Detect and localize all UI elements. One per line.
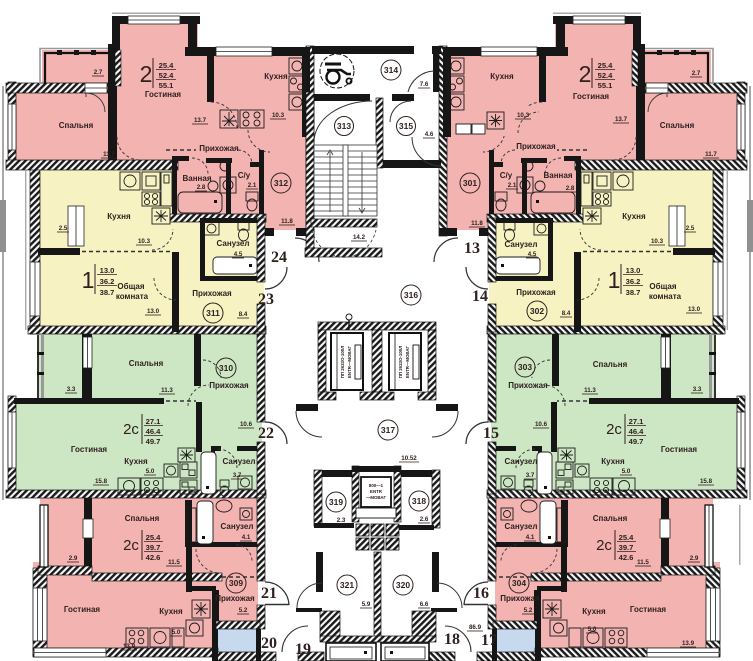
- svg-text:13: 13: [464, 240, 480, 257]
- svg-text:313: 313: [337, 121, 351, 131]
- svg-text:Кухня: Кухня: [490, 72, 514, 81]
- svg-text:Спальня: Спальня: [593, 360, 628, 369]
- svg-text:13.7: 13.7: [615, 116, 628, 123]
- svg-text:Кухня: Кухня: [124, 457, 148, 466]
- svg-text:5.0: 5.0: [146, 468, 155, 475]
- svg-text:309: 309: [229, 578, 243, 588]
- svg-text:5.9: 5.9: [362, 601, 371, 608]
- svg-text:302: 302: [530, 306, 544, 316]
- svg-text:10.3: 10.3: [138, 238, 151, 245]
- svg-text:С/у: С/у: [238, 171, 251, 180]
- svg-text:ENTR: ENTR: [370, 489, 383, 494]
- svg-text:Ванная: Ванная: [182, 174, 211, 183]
- svg-text:Прихожая: Прихожая: [192, 289, 232, 298]
- svg-text:2.9: 2.9: [690, 555, 699, 562]
- svg-text:800—1: 800—1: [369, 483, 384, 488]
- svg-text:42.6: 42.6: [146, 553, 161, 562]
- svg-text:4.5: 4.5: [234, 251, 243, 258]
- svg-text:Гостиная: Гостиная: [71, 445, 107, 454]
- svg-text:11.8: 11.8: [471, 220, 483, 227]
- svg-text:2.9: 2.9: [69, 555, 78, 562]
- svg-text:25.4: 25.4: [159, 61, 175, 70]
- svg-text:3.3: 3.3: [693, 386, 702, 393]
- svg-text:38.7: 38.7: [100, 288, 115, 297]
- svg-text:2с: 2с: [606, 421, 622, 438]
- svg-text:52.4: 52.4: [159, 71, 175, 80]
- svg-text:10.3: 10.3: [517, 112, 530, 119]
- svg-text:24: 24: [271, 249, 287, 266]
- svg-text:комната: комната: [649, 292, 682, 301]
- svg-text:Кухня: Кухня: [601, 457, 625, 466]
- svg-text:5.2: 5.2: [524, 607, 533, 614]
- svg-text:55.1: 55.1: [159, 81, 175, 90]
- svg-text:17: 17: [481, 632, 497, 649]
- svg-text:—МОВАГ: —МОВАГ: [366, 495, 387, 500]
- svg-text:2с: 2с: [123, 421, 139, 438]
- svg-text:311: 311: [206, 308, 220, 318]
- svg-text:Спальня: Спальня: [660, 121, 695, 130]
- svg-text:2.1: 2.1: [248, 182, 257, 189]
- svg-text:317: 317: [381, 425, 395, 435]
- svg-text:1: 1: [82, 267, 95, 293]
- svg-text:5.0: 5.0: [172, 629, 181, 636]
- svg-text:39.7: 39.7: [146, 543, 161, 552]
- svg-text:Прихожая: Прихожая: [508, 381, 548, 390]
- svg-text:Общая: Общая: [649, 282, 676, 291]
- svg-text:Санузел: Санузел: [505, 522, 538, 531]
- svg-text:25.4: 25.4: [146, 533, 162, 542]
- svg-text:4.1: 4.1: [242, 534, 251, 541]
- svg-text:Гостиная: Гостиная: [145, 90, 181, 99]
- svg-text:Спальня: Спальня: [129, 359, 164, 368]
- svg-text:13.0: 13.0: [688, 306, 701, 313]
- svg-text:10.6: 10.6: [240, 421, 253, 428]
- svg-text:312: 312: [274, 178, 288, 188]
- svg-text:Кухня: Кухня: [622, 212, 646, 221]
- svg-text:18: 18: [444, 631, 460, 648]
- svg-text:8.4: 8.4: [562, 310, 571, 317]
- svg-text:36.2: 36.2: [626, 277, 641, 286]
- svg-text:11.7: 11.7: [705, 151, 717, 158]
- svg-text:ENTR—МОВАГ: ENTR—МОВАГ: [405, 345, 410, 378]
- svg-text:13.0: 13.0: [100, 266, 115, 275]
- svg-text:36.2: 36.2: [100, 277, 115, 286]
- svg-text:22: 22: [258, 425, 274, 442]
- svg-text:49.7: 49.7: [629, 437, 644, 446]
- svg-text:27.1: 27.1: [146, 417, 162, 426]
- svg-text:4.1: 4.1: [526, 534, 535, 541]
- svg-text:19: 19: [295, 641, 311, 658]
- svg-text:38.7: 38.7: [626, 288, 641, 297]
- svg-text:13.9: 13.9: [682, 640, 695, 647]
- svg-text:Гостиная: Гостиная: [630, 605, 666, 614]
- svg-text:4.6: 4.6: [425, 131, 434, 138]
- svg-text:2с: 2с: [123, 537, 139, 554]
- svg-text:301: 301: [463, 178, 477, 188]
- svg-text:42.6: 42.6: [619, 553, 634, 562]
- svg-text:3.7: 3.7: [233, 472, 242, 479]
- svg-text:314: 314: [384, 65, 398, 75]
- svg-text:310: 310: [219, 363, 233, 373]
- svg-text:ПП 2633О-100Л: ПП 2633О-100Л: [398, 346, 403, 379]
- svg-text:11.5: 11.5: [637, 559, 649, 566]
- svg-text:Санузел: Санузел: [223, 457, 256, 466]
- svg-text:8.4: 8.4: [239, 311, 248, 318]
- svg-text:15.8: 15.8: [95, 478, 108, 485]
- svg-text:13.9: 13.9: [123, 643, 136, 650]
- svg-text:10.6: 10.6: [535, 421, 548, 428]
- svg-text:304: 304: [512, 578, 526, 588]
- svg-text:Санузел: Санузел: [221, 522, 254, 531]
- svg-text:16: 16: [473, 585, 489, 602]
- svg-text:11.8: 11.8: [281, 218, 293, 225]
- svg-text:2.5: 2.5: [686, 225, 695, 232]
- svg-text:14.2: 14.2: [353, 234, 366, 241]
- svg-text:Санузел: Санузел: [217, 239, 250, 248]
- svg-text:Гостиная: Гостиная: [64, 605, 100, 614]
- svg-text:Гостиная: Гостиная: [573, 92, 609, 101]
- svg-text:Спальня: Спальня: [125, 514, 160, 523]
- svg-text:39.7: 39.7: [619, 543, 634, 552]
- svg-text:319: 319: [329, 497, 343, 507]
- svg-text:21: 21: [261, 585, 277, 602]
- svg-text:Общая: Общая: [117, 282, 144, 291]
- svg-text:2.8: 2.8: [566, 185, 575, 192]
- svg-text:5.2: 5.2: [239, 607, 248, 614]
- svg-text:55.1: 55.1: [598, 81, 614, 90]
- svg-text:5.0: 5.0: [588, 626, 597, 633]
- svg-text:6.6: 6.6: [420, 601, 429, 608]
- svg-text:25.4: 25.4: [619, 533, 635, 542]
- svg-text:10.3: 10.3: [272, 112, 285, 119]
- svg-text:5.0: 5.0: [622, 468, 631, 475]
- svg-text:316: 316: [404, 290, 418, 300]
- svg-text:321: 321: [340, 580, 354, 590]
- svg-text:11.5: 11.5: [168, 559, 180, 566]
- svg-text:13.0: 13.0: [147, 308, 160, 315]
- svg-text:2.8: 2.8: [197, 184, 206, 191]
- svg-text:315: 315: [399, 121, 413, 131]
- svg-text:1: 1: [608, 267, 621, 293]
- svg-text:13.0: 13.0: [626, 266, 641, 275]
- svg-text:Санузел: Санузел: [505, 457, 538, 466]
- svg-text:С/у: С/у: [500, 171, 513, 180]
- svg-text:Спальня: Спальня: [59, 121, 94, 130]
- svg-text:49.7: 49.7: [146, 437, 161, 446]
- svg-text:46.4: 46.4: [629, 427, 645, 436]
- svg-text:Прихожая: Прихожая: [516, 288, 556, 297]
- svg-text:2.7: 2.7: [94, 69, 103, 76]
- svg-text:2.1: 2.1: [508, 182, 517, 189]
- svg-text:Санузел: Санузел: [505, 240, 538, 249]
- svg-text:2.6: 2.6: [420, 516, 429, 523]
- svg-text:86.9: 86.9: [469, 624, 482, 631]
- svg-text:10.52: 10.52: [401, 455, 417, 462]
- svg-text:Кухня: Кухня: [107, 212, 131, 221]
- svg-text:13.7: 13.7: [194, 117, 207, 124]
- svg-text:Прихожая: Прихожая: [516, 142, 556, 151]
- svg-text:Ванная: Ванная: [543, 171, 572, 180]
- svg-text:14: 14: [472, 288, 488, 305]
- svg-text:комната: комната: [116, 292, 149, 301]
- svg-text:46.4: 46.4: [146, 427, 162, 436]
- svg-text:7.6: 7.6: [420, 81, 429, 88]
- svg-text:10.3: 10.3: [651, 238, 664, 245]
- svg-text:23: 23: [258, 291, 274, 308]
- svg-text:11.3: 11.3: [584, 387, 596, 394]
- svg-text:Прихожая: Прихожая: [199, 144, 239, 153]
- svg-text:20: 20: [261, 635, 277, 652]
- svg-text:2с: 2с: [596, 537, 612, 554]
- svg-text:25.4: 25.4: [598, 61, 614, 70]
- svg-text:303: 303: [518, 362, 532, 372]
- svg-text:Прихожая: Прихожая: [209, 381, 249, 390]
- svg-text:11.3: 11.3: [161, 387, 173, 394]
- svg-text:Гостиная: Гостиная: [661, 445, 697, 454]
- svg-text:Кухня: Кухня: [159, 607, 183, 616]
- svg-text:15.8: 15.8: [700, 478, 713, 485]
- svg-text:2.7: 2.7: [692, 70, 701, 77]
- svg-text:2: 2: [140, 61, 153, 87]
- svg-text:4.5: 4.5: [528, 251, 537, 258]
- svg-text:Прихожая: Прихожая: [215, 594, 255, 603]
- svg-text:320: 320: [396, 580, 410, 590]
- svg-text:2.5: 2.5: [59, 225, 68, 232]
- svg-text:ПП 2633О-100Л: ПП 2633О-100Л: [340, 346, 345, 379]
- svg-text:Прихожая: Прихожая: [500, 594, 540, 603]
- svg-text:3.3: 3.3: [67, 386, 76, 393]
- svg-text:318: 318: [412, 496, 426, 506]
- svg-text:2: 2: [579, 61, 592, 87]
- svg-text:3.7: 3.7: [526, 472, 535, 479]
- svg-text:15: 15: [483, 425, 499, 442]
- svg-text:ENTR—МОВАГ: ENTR—МОВАГ: [347, 345, 352, 378]
- svg-text:Кухня: Кухня: [582, 607, 606, 616]
- svg-text:Спальня: Спальня: [593, 514, 628, 523]
- svg-text:Кухня: Кухня: [264, 72, 288, 81]
- svg-text:2.3: 2.3: [337, 517, 346, 524]
- svg-text:27.1: 27.1: [629, 417, 645, 426]
- svg-text:11.7: 11.7: [103, 151, 115, 158]
- svg-text:52.4: 52.4: [598, 71, 614, 80]
